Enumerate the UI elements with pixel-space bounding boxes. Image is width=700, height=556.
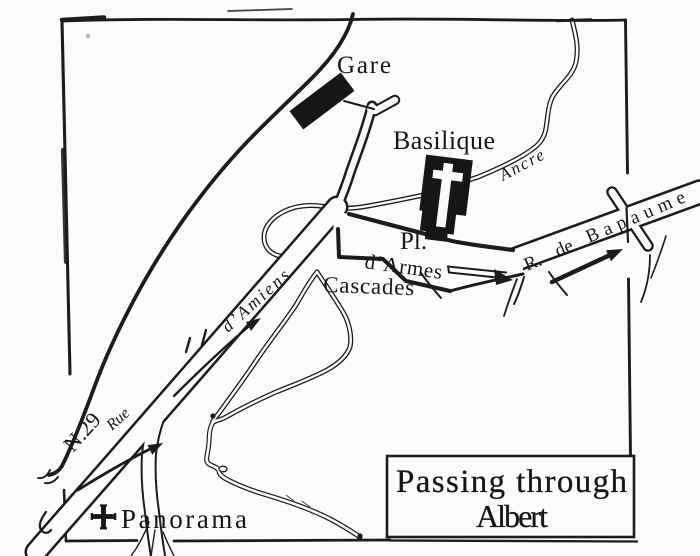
- svg-text:Cascades: Cascades: [323, 272, 415, 300]
- svg-text:Pl.: Pl.: [400, 228, 427, 255]
- svg-text:Gare: Gare: [337, 52, 391, 79]
- svg-text:Albert: Albert: [476, 498, 548, 534]
- svg-text:Basilique: Basilique: [393, 126, 495, 155]
